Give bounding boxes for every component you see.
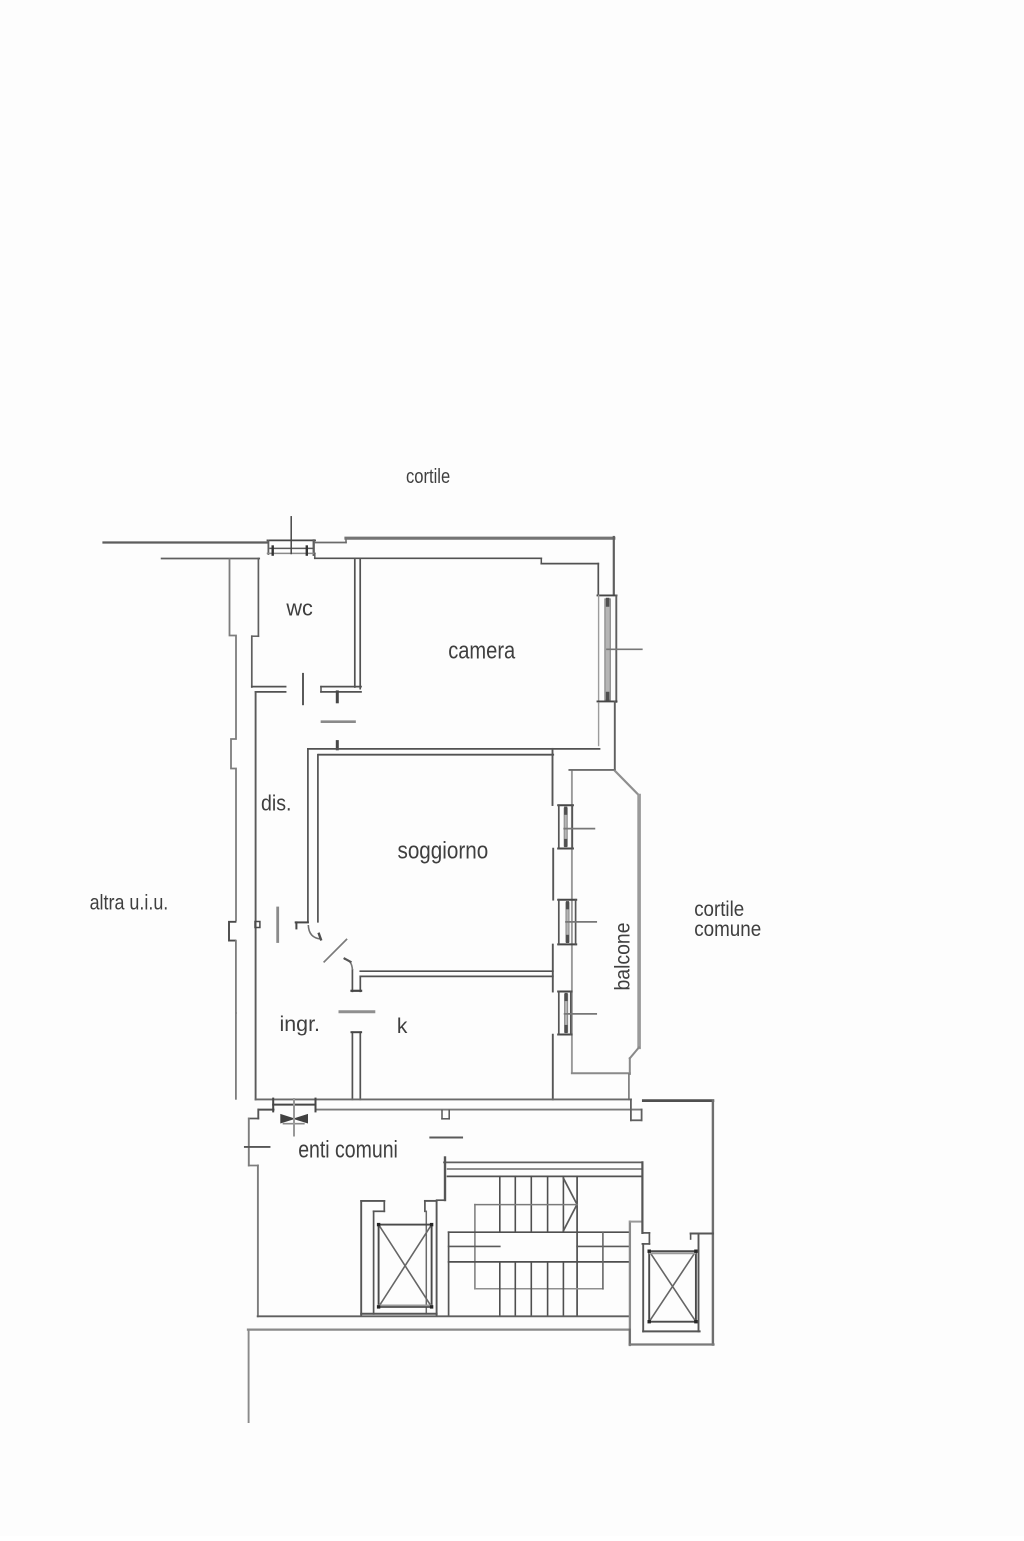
svg-text:wc: wc: [285, 595, 312, 620]
svg-text:altra u.i.u.: altra u.i.u.: [90, 891, 169, 914]
svg-text:dis.: dis.: [261, 791, 292, 816]
svg-text:ingr.: ingr.: [280, 1013, 321, 1036]
svg-text:cortile: cortile: [406, 466, 450, 488]
svg-text:balcone: balcone: [612, 923, 635, 991]
svg-text:soggiorno: soggiorno: [398, 838, 489, 865]
svg-text:comune: comune: [694, 918, 761, 941]
svg-text:enti comuni: enti comuni: [298, 1136, 398, 1163]
svg-text:k: k: [397, 1015, 408, 1038]
svg-text:camera: camera: [448, 638, 516, 665]
